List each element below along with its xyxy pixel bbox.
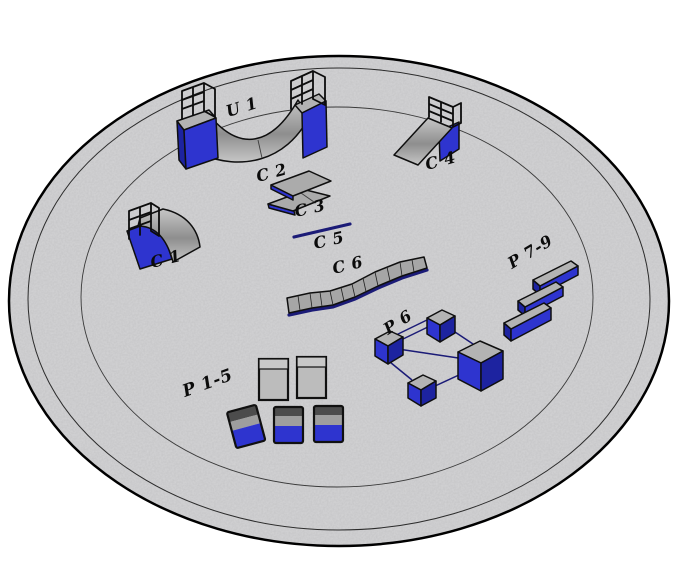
p1-tall-box — [259, 359, 288, 400]
scene-canvas[interactable]: U 1 C 1 C 2 C 3 C 4 C 5 C 6 — [0, 0, 680, 579]
3d-viewport[interactable]: U 1 C 1 C 2 C 3 C 4 C 5 C 6 — [0, 0, 680, 579]
p2-tall-box — [297, 357, 326, 398]
p4-box — [274, 407, 303, 443]
p5-box — [314, 406, 343, 442]
